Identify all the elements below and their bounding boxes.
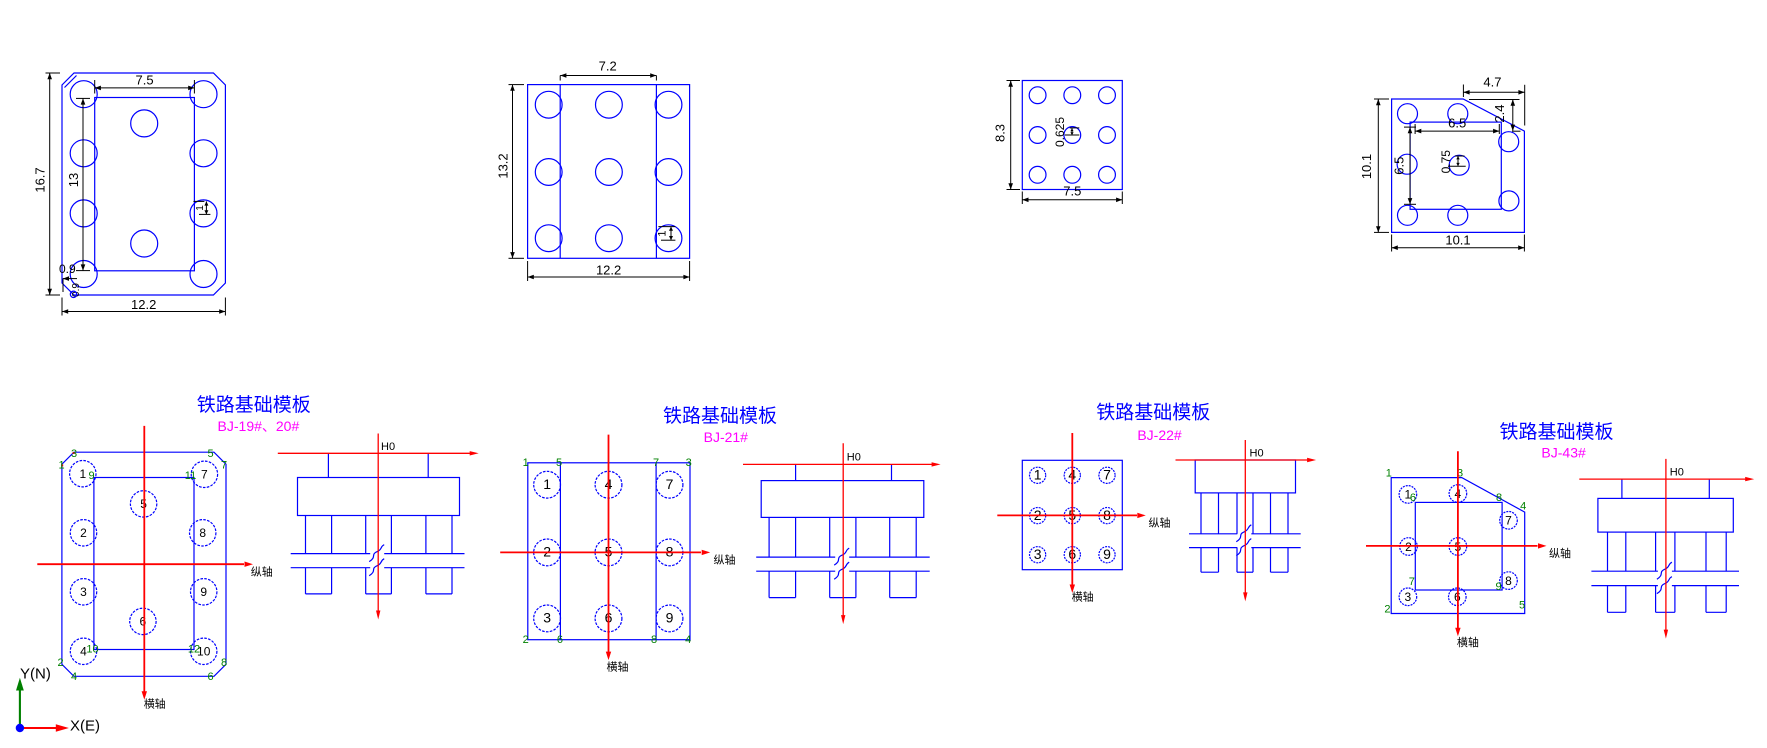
svg-text:0.75: 0.75: [1439, 150, 1453, 174]
svg-text:13.2: 13.2: [496, 153, 511, 178]
svg-text:6: 6: [1410, 492, 1416, 504]
svg-text:9: 9: [1495, 581, 1501, 593]
svg-text:8: 8: [1496, 492, 1502, 504]
svg-text:BJ-43#: BJ-43#: [1541, 445, 1586, 461]
svg-text:7: 7: [1409, 576, 1415, 588]
svg-text:铁路基础模板: 铁路基础模板: [197, 394, 311, 416]
svg-text:2.4: 2.4: [1492, 105, 1507, 123]
svg-text:H0: H0: [381, 441, 395, 453]
svg-text:铁路基础模板: 铁路基础模板: [663, 405, 777, 427]
svg-text:12: 12: [188, 644, 200, 656]
svg-text:3: 3: [80, 585, 87, 599]
svg-text:BJ-21#: BJ-21#: [704, 429, 749, 445]
svg-text:纵轴: 纵轴: [714, 553, 736, 567]
svg-text:0.9: 0.9: [59, 262, 76, 276]
svg-text:7: 7: [1505, 514, 1512, 528]
svg-text:7.2: 7.2: [599, 59, 617, 74]
svg-text:铁路基础模板: 铁路基础模板: [1096, 401, 1210, 423]
svg-text:1: 1: [195, 205, 206, 211]
svg-text:12.2: 12.2: [596, 262, 621, 277]
svg-text:5: 5: [207, 448, 213, 460]
svg-text:3: 3: [71, 448, 77, 460]
svg-text:2: 2: [80, 526, 87, 540]
svg-text:5: 5: [1519, 599, 1525, 611]
svg-text:横轴: 横轴: [1072, 590, 1094, 604]
svg-text:1: 1: [79, 467, 86, 481]
svg-text:13: 13: [66, 173, 81, 187]
svg-text:1: 1: [657, 230, 669, 236]
svg-text:7: 7: [666, 476, 674, 492]
svg-text:8: 8: [1505, 574, 1512, 588]
svg-text:11: 11: [185, 470, 196, 482]
svg-text:5: 5: [556, 457, 562, 469]
svg-text:横轴: 横轴: [607, 660, 629, 674]
svg-text:H0: H0: [847, 452, 861, 464]
svg-text:7: 7: [1103, 467, 1111, 483]
svg-text:7.5: 7.5: [136, 73, 154, 88]
svg-text:12.2: 12.2: [131, 297, 156, 312]
svg-text:1: 1: [58, 460, 64, 472]
svg-text:2: 2: [1384, 604, 1390, 616]
svg-text:1: 1: [1386, 467, 1392, 479]
svg-text:6: 6: [207, 671, 213, 683]
svg-text:8: 8: [199, 526, 206, 540]
svg-text:纵轴: 纵轴: [1149, 516, 1171, 530]
svg-text:7: 7: [221, 460, 227, 472]
svg-text:BJ-19#、20#: BJ-19#、20#: [218, 418, 300, 434]
svg-text:1: 1: [543, 476, 551, 492]
svg-text:4: 4: [685, 634, 691, 646]
svg-text:6: 6: [557, 634, 563, 646]
svg-text:8.3: 8.3: [992, 124, 1007, 142]
svg-text:6.5: 6.5: [1392, 157, 1407, 175]
svg-text:3: 3: [686, 457, 692, 469]
svg-text:10.1: 10.1: [1445, 232, 1470, 247]
svg-text:9: 9: [200, 585, 207, 599]
svg-text:4.7: 4.7: [1483, 75, 1501, 90]
svg-text:9: 9: [88, 470, 94, 482]
svg-text:BJ-22#: BJ-22#: [1137, 427, 1182, 443]
svg-text:0.625: 0.625: [1053, 117, 1067, 147]
svg-text:Y(N): Y(N): [20, 665, 51, 682]
svg-text:3: 3: [543, 610, 551, 626]
svg-text:16.7: 16.7: [33, 167, 48, 192]
svg-text:8: 8: [221, 657, 227, 669]
svg-text:2: 2: [57, 657, 63, 669]
svg-text:H0: H0: [1250, 448, 1264, 460]
svg-text:8: 8: [651, 634, 657, 646]
svg-text:1: 1: [523, 457, 529, 469]
svg-text:铁路基础模板: 铁路基础模板: [1499, 421, 1613, 443]
svg-text:4: 4: [1520, 501, 1526, 513]
svg-text:7: 7: [201, 468, 208, 482]
svg-text:3: 3: [1405, 590, 1412, 604]
svg-text:3: 3: [1034, 546, 1042, 562]
svg-text:9: 9: [1103, 546, 1111, 562]
svg-text:横轴: 横轴: [1457, 635, 1479, 649]
svg-text:7: 7: [653, 457, 659, 469]
svg-text:9: 9: [666, 610, 674, 626]
svg-text:X(E): X(E): [70, 718, 100, 735]
svg-text:10.1: 10.1: [1359, 154, 1374, 179]
svg-text:横轴: 横轴: [144, 697, 166, 711]
svg-text:纵轴: 纵轴: [251, 565, 273, 579]
svg-text:10: 10: [86, 644, 98, 656]
svg-text:纵轴: 纵轴: [1549, 546, 1571, 560]
svg-text:1: 1: [1034, 467, 1042, 483]
svg-text:6.5: 6.5: [1448, 116, 1466, 131]
svg-text:H0: H0: [1670, 467, 1684, 479]
svg-text:7.5: 7.5: [1063, 183, 1081, 198]
svg-text:4: 4: [71, 671, 77, 683]
svg-text:6: 6: [140, 615, 147, 629]
svg-text:2: 2: [523, 634, 529, 646]
